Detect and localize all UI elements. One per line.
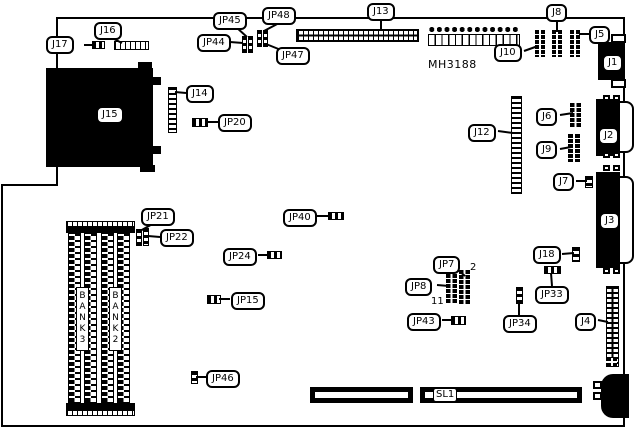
motherboard-diagram: BANK 3 BANK 2 MH3188 2 11 [0,0,637,434]
callout-jp33: JP33 [535,286,569,304]
callout-sl1: SL1 [433,388,457,402]
callout-jp34: JP34 [503,315,537,333]
callout-jp40: JP40 [283,209,317,227]
callout-j3: J3 [599,212,620,230]
callout-jp8: JP8 [405,278,432,296]
callout-j12: J12 [468,124,496,142]
callout-j9: J9 [536,141,557,159]
jp8-pin11-annotation: 11 [431,296,444,307]
callout-pointer-lines [0,0,637,434]
callout-jp22: JP22 [160,229,194,247]
callout-j16: J16 [94,22,122,40]
callout-jp7: JP7 [433,256,460,274]
callout-j10: J10 [494,44,522,62]
callout-j6: J6 [536,108,557,126]
callout-jp46: JP46 [206,370,240,388]
callout-j14: J14 [186,85,214,103]
callout-jp44: JP44 [197,34,231,52]
callout-j4: J4 [575,313,596,331]
callout-j7: J7 [553,173,574,191]
callout-j15: J15 [96,106,124,124]
callout-j13: J13 [367,3,395,21]
callout-jp20: JP20 [218,114,252,132]
callout-jp21: JP21 [141,208,175,226]
jp7-pin2-annotation: 2 [470,262,476,273]
callout-j1: J1 [602,54,623,72]
callout-jp45: JP45 [213,12,247,30]
callout-jp48: JP48 [262,7,296,25]
callout-jp15: JP15 [231,292,265,310]
callout-j2: J2 [598,127,619,145]
callout-j17: J17 [46,36,74,54]
callout-j5: J5 [589,26,610,44]
callout-j8: J8 [546,4,567,22]
callout-jp47: JP47 [276,47,310,65]
callout-jp43: JP43 [407,313,441,331]
callout-j18: J18 [533,246,561,264]
callout-jp24: JP24 [223,248,257,266]
